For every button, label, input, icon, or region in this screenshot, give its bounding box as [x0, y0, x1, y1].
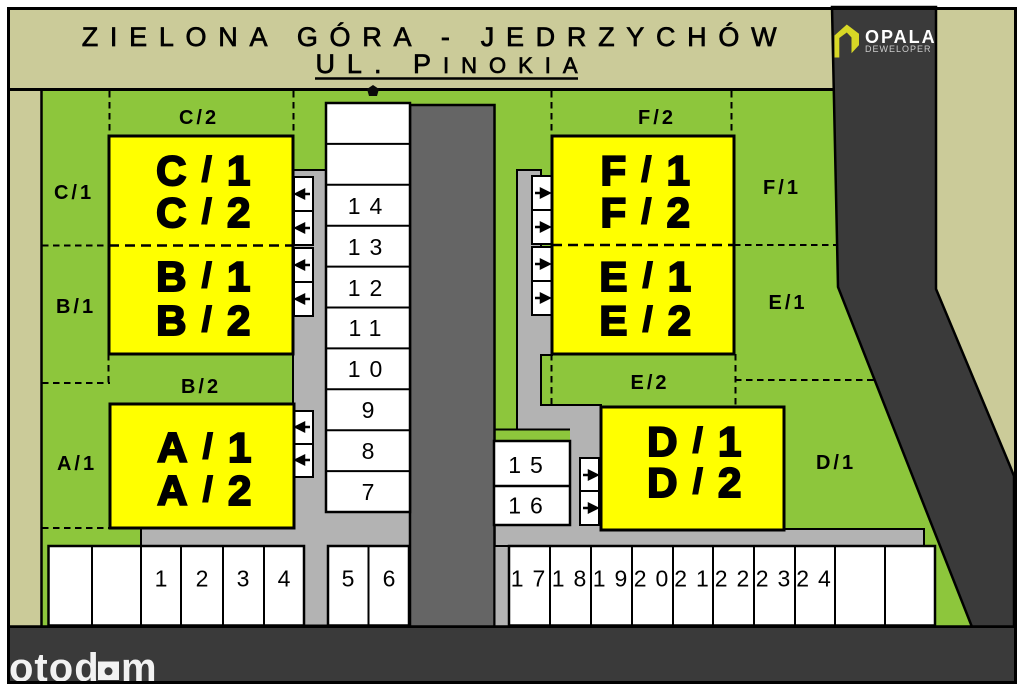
svg-text:12: 12 — [348, 275, 392, 301]
svg-text:C/1: C/1 — [156, 147, 266, 194]
svg-text:B/2: B/2 — [156, 297, 266, 344]
svg-text:18: 18 — [552, 566, 596, 592]
svg-text:E/1: E/1 — [768, 292, 807, 314]
svg-text:4: 4 — [278, 566, 291, 592]
svg-text:15: 15 — [508, 452, 552, 478]
svg-text:13: 13 — [348, 234, 392, 260]
svg-text:20: 20 — [634, 566, 678, 592]
svg-text:5: 5 — [342, 566, 355, 592]
svg-text:B/2: B/2 — [181, 376, 221, 398]
svg-text:E/2: E/2 — [599, 297, 706, 344]
svg-text:1: 1 — [155, 566, 168, 592]
svg-text:F/2: F/2 — [638, 107, 676, 129]
svg-text:B/1: B/1 — [156, 253, 266, 300]
svg-text:D/1: D/1 — [816, 452, 856, 474]
svg-text:D/1: D/1 — [647, 418, 757, 465]
svg-text:B/1: B/1 — [56, 296, 96, 318]
svg-text:C/1: C/1 — [54, 182, 94, 204]
svg-text:A/2: A/2 — [157, 467, 267, 514]
svg-text:F/1: F/1 — [763, 177, 801, 199]
svg-text:E/2: E/2 — [630, 372, 669, 394]
svg-text:8: 8 — [362, 438, 375, 464]
svg-text:E/1: E/1 — [599, 253, 706, 300]
svg-text:9: 9 — [362, 397, 375, 423]
svg-text:22: 22 — [715, 566, 759, 592]
svg-text:DEWELOPER: DEWELOPER — [865, 44, 932, 54]
svg-text:UL. PINOKIA: UL. PINOKIA — [315, 49, 589, 79]
svg-text:F/2: F/2 — [601, 189, 706, 236]
svg-text:19: 19 — [593, 566, 637, 592]
svg-text:11: 11 — [349, 315, 391, 341]
svg-text:7: 7 — [362, 479, 375, 505]
svg-text:F/1: F/1 — [601, 147, 706, 194]
svg-text:C/2: C/2 — [179, 107, 219, 129]
svg-text:D/2: D/2 — [647, 459, 757, 506]
svg-text:C/2: C/2 — [156, 189, 266, 236]
svg-text:6: 6 — [383, 566, 396, 592]
svg-text:17: 17 — [511, 566, 555, 592]
svg-text:A/1: A/1 — [57, 453, 97, 475]
svg-text:21: 21 — [674, 566, 718, 592]
svg-text:3: 3 — [237, 566, 250, 592]
svg-text:ZIELONA GÓRA - JEDRZYCHÓW: ZIELONA GÓRA - JEDRZYCHÓW — [82, 21, 789, 52]
svg-text:A/1: A/1 — [157, 424, 267, 471]
svg-text:23: 23 — [756, 566, 800, 592]
svg-text:14: 14 — [348, 193, 392, 219]
svg-text:24: 24 — [796, 566, 840, 592]
svg-text:10: 10 — [348, 356, 392, 382]
svg-text:2: 2 — [196, 566, 209, 592]
svg-text:16: 16 — [508, 493, 552, 519]
